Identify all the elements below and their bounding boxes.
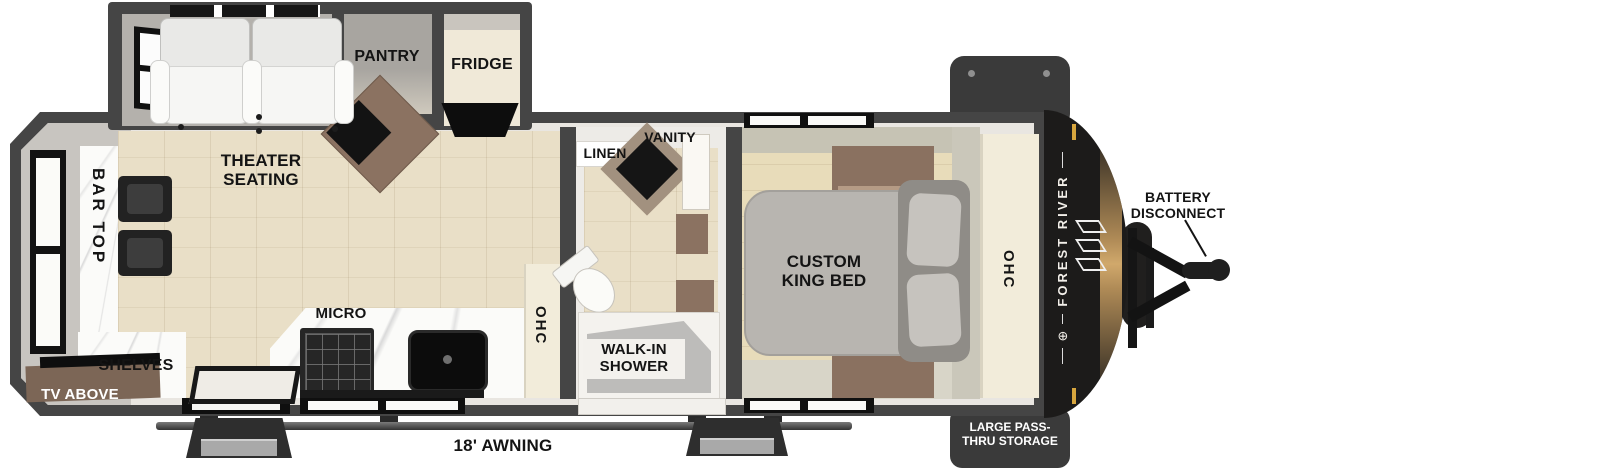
pantry-label: PANTRY — [347, 48, 427, 66]
stool-seat — [127, 184, 163, 214]
fridge-label: FRIDGE — [442, 56, 522, 74]
step-tread — [700, 438, 773, 454]
bedroom-top-window — [744, 113, 874, 128]
tv-above-label: TV ABOVE — [32, 387, 128, 404]
bath-wardrobe — [676, 280, 714, 314]
brand-name: FOREST RIVER — [1055, 175, 1070, 307]
stove — [300, 328, 374, 396]
window-pane — [36, 254, 60, 346]
cupholder-icon — [178, 124, 184, 130]
micro-label: MICRO — [301, 306, 381, 323]
entry-step — [186, 418, 292, 458]
pillow — [906, 193, 962, 268]
linen-label: LINEN — [576, 146, 634, 162]
pillow — [906, 273, 962, 348]
cap-marker-light — [1072, 388, 1076, 404]
bath-bedroom-wall — [726, 127, 742, 399]
sink — [408, 330, 488, 392]
rivet-icon — [968, 70, 975, 77]
brand-rule — [1062, 349, 1063, 365]
living-bottom-window — [300, 398, 465, 414]
window-pane — [750, 401, 800, 410]
step-tread — [201, 439, 277, 456]
globe-logo-icon: ⊕ — [1056, 331, 1069, 342]
cupholder-icon — [256, 128, 262, 134]
window-pane — [386, 401, 458, 410]
forest-river-brand: ⊕ FOREST RIVER — [1045, 148, 1105, 368]
entry-door-swing — [189, 366, 302, 404]
brand-rule — [1062, 152, 1063, 168]
bedroom-ohc-label: OHC — [1000, 250, 1017, 289]
brand-stripe — [1075, 239, 1107, 252]
kitchen-ohc-label: OHC — [532, 306, 549, 345]
walk-in-shower-label: WALK-IN SHOWER — [586, 342, 682, 376]
pass-thru-storage-label: LARGE PASS-THRU STORAGE — [960, 421, 1060, 449]
shower-bottom-wall — [578, 398, 726, 415]
brand-stripe — [1075, 258, 1107, 271]
awning-label: 18' AWNING — [433, 436, 573, 455]
bar-stool — [118, 176, 172, 222]
shelves-label: SHELVES — [86, 357, 186, 375]
theater-seat-cushion — [254, 66, 342, 124]
bar-top-label: BAR TOP — [88, 168, 108, 265]
window-pane — [308, 401, 378, 410]
custom-king-bed-label: CUSTOM KING BED — [776, 252, 872, 290]
window-pane — [808, 116, 866, 125]
window-pane — [808, 401, 866, 410]
brand-stripes-icon — [1079, 217, 1108, 274]
hitch-ball — [1208, 259, 1230, 281]
slideout-skylight — [170, 5, 320, 17]
cap-marker-light — [1072, 124, 1076, 140]
brand-stripe — [1075, 220, 1107, 233]
brand-rule — [1062, 314, 1063, 324]
theater-armrest — [334, 60, 354, 124]
burner-grate — [305, 333, 371, 393]
bath-wardrobe — [676, 214, 708, 254]
window-pane — [750, 116, 800, 125]
theater-seating-label: THEATER SEATING — [206, 151, 316, 189]
theater-seat-cushion — [162, 66, 250, 124]
battery-disconnect-label: BATTERY DISCONNECT — [1126, 190, 1230, 221]
rivet-icon — [1043, 70, 1050, 77]
battery-disconnect-pointer — [1184, 220, 1207, 257]
counter-edge — [300, 390, 484, 398]
living-side-window — [30, 150, 66, 354]
entry-step — [686, 418, 788, 456]
cupholder-icon — [332, 126, 338, 132]
bedroom-bottom-window — [744, 398, 874, 413]
bar-stool — [118, 230, 172, 276]
theater-armrest — [150, 60, 170, 124]
faucet-icon — [443, 355, 452, 364]
cupholder-icon — [256, 114, 262, 120]
vanity-label: VANITY — [618, 130, 722, 146]
window-pane — [36, 158, 60, 246]
floorplan: LARGE PASS-THRU STORAGE 18' AWNING PANTR… — [0, 0, 1600, 469]
stool-seat — [127, 238, 163, 268]
